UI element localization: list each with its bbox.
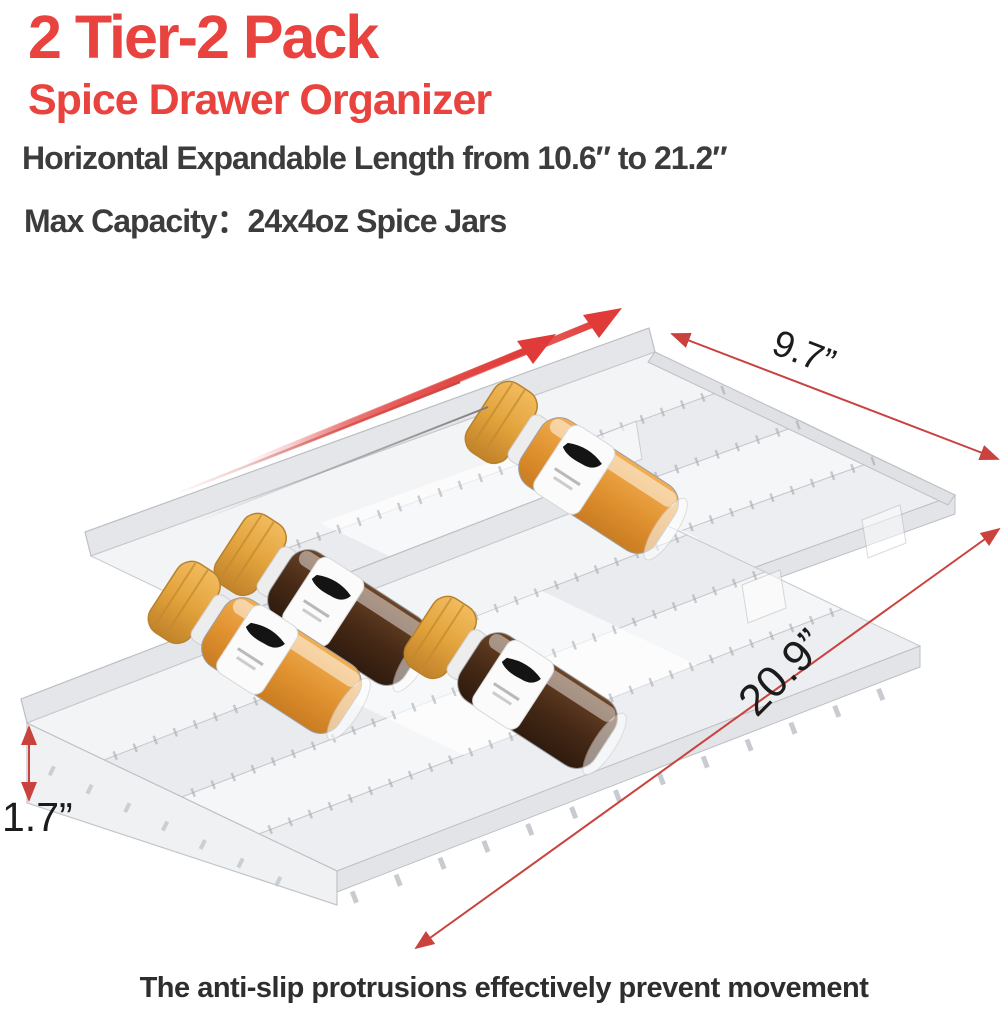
bottom-caption: The anti-slip protrusions effectively pr…: [0, 972, 1008, 1005]
page-title: 2 Tier-2 Pack: [28, 2, 377, 72]
feature-expandable-length: Horizontal Expandable Length from 10.6″ …: [22, 140, 727, 177]
expand-arrow-head: [583, 308, 622, 338]
feature-max-capacity: Max Capacity：24x4oz Spice Jars: [24, 196, 506, 242]
page-subtitle: Spice Drawer Organizer: [28, 76, 491, 125]
expand-arrow-head: [517, 334, 556, 364]
height-dimension-label: 1.7”: [2, 794, 73, 841]
